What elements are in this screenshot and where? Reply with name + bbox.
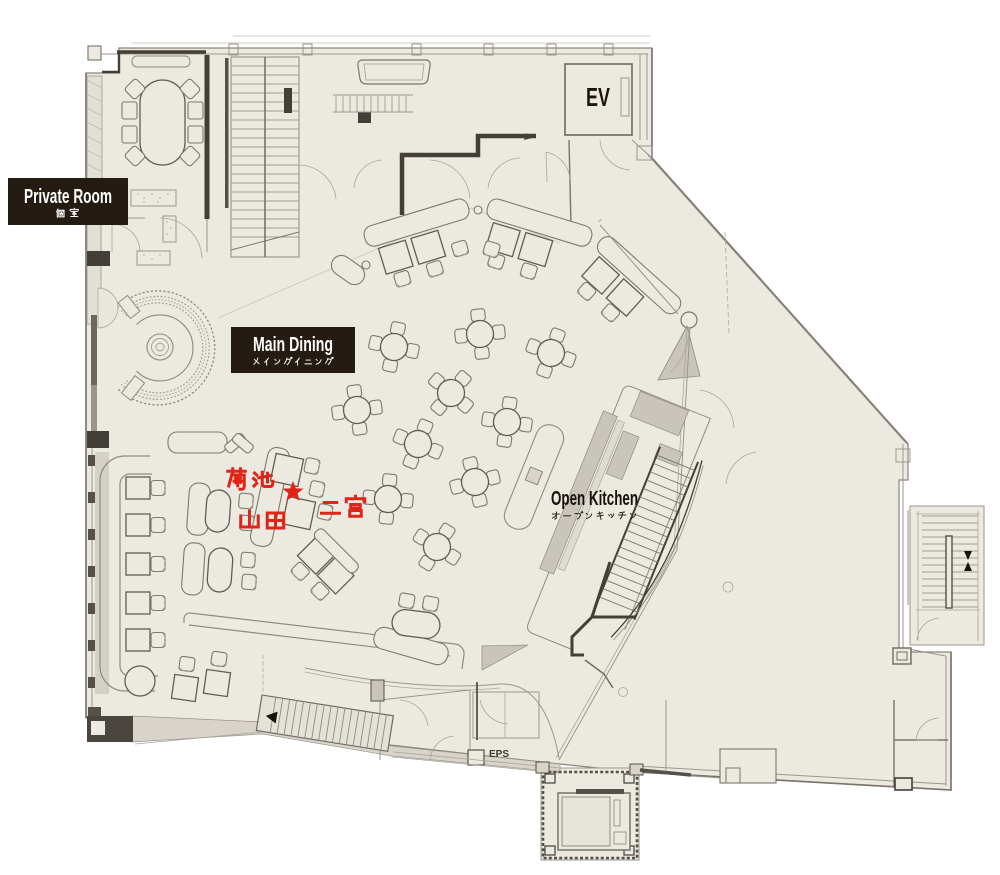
svg-text:EPS: EPS: [489, 749, 509, 760]
svg-text:Main Dining: Main Dining: [253, 334, 333, 356]
svg-text:Open Kitchen: Open Kitchen: [551, 488, 638, 510]
svg-text:Private Room: Private Room: [24, 186, 112, 208]
svg-text:EV: EV: [586, 82, 610, 112]
